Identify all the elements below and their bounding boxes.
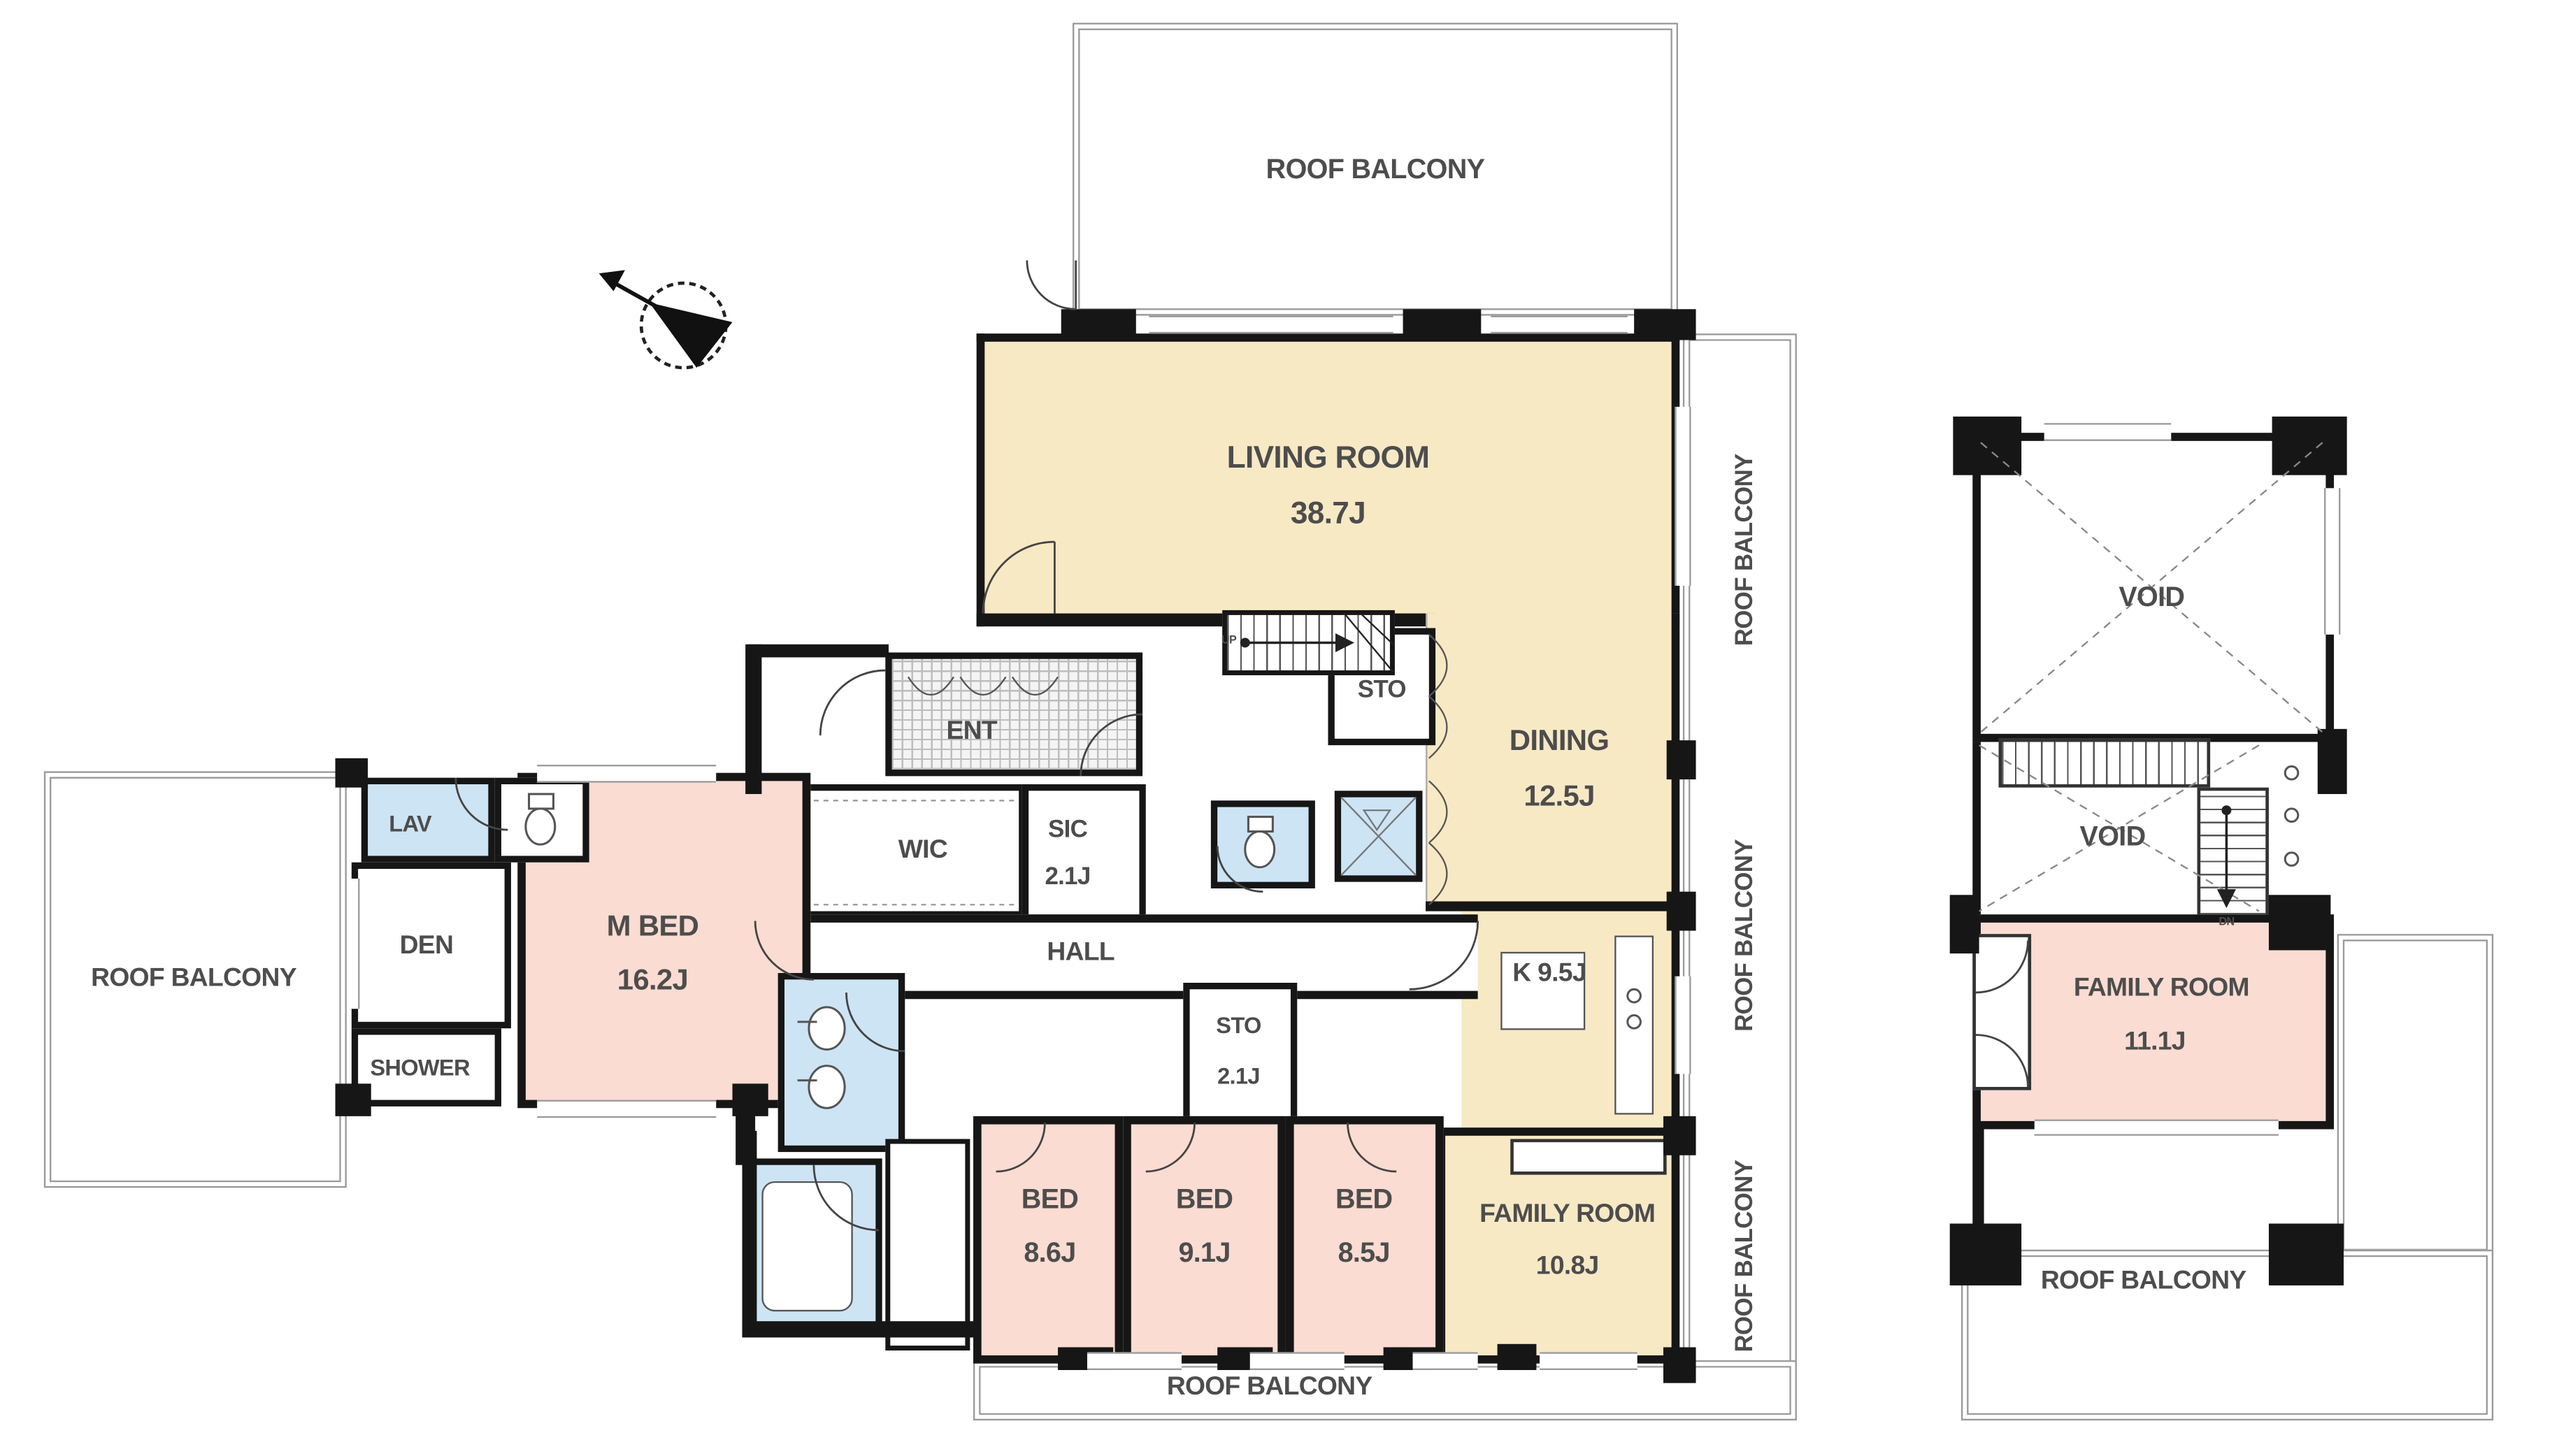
label-bed3-area: 8.5J [1338, 1239, 1390, 1267]
window [2044, 423, 2172, 441]
column [1498, 1344, 1537, 1370]
bed-closet [885, 1139, 970, 1350]
wall-kitchen-top [1426, 902, 1679, 911]
label-hall: HALL [1047, 940, 1114, 966]
annex-stairs-upper [1999, 739, 2211, 788]
label-sic-area: 2.1J [1045, 865, 1090, 889]
annex-family-doors [1972, 934, 2031, 1090]
label-bed2-area: 9.1J [1178, 1239, 1230, 1267]
label-roof-balcony-left: ROOF BALCONY [91, 967, 296, 993]
window [1087, 1352, 1182, 1370]
label-annex-family-area: 11.1J [2124, 1030, 2186, 1055]
column [336, 1083, 371, 1116]
column [2318, 729, 2347, 794]
stairs-main [1222, 610, 1395, 675]
room-hall [810, 914, 1477, 999]
label-roof-balcony-right-1: ROOF BALCONY [1733, 454, 1757, 646]
label-roof-balcony-right-3: ROOF BALCONY [1733, 1160, 1757, 1353]
label-wic: WIC [898, 838, 947, 864]
column [336, 758, 368, 788]
column [1667, 740, 1696, 779]
room-washroom [778, 973, 905, 1152]
column [1953, 417, 2021, 475]
label-sto-lower-name: STO [1216, 1014, 1261, 1037]
label-dining-name: DINING [1510, 726, 1609, 755]
column [2269, 1224, 2344, 1285]
window [1413, 1352, 1478, 1370]
label-roof-balcony-right-2: ROOF BALCONY [1733, 839, 1757, 1032]
label-roof-balcony-bottom: ROOF BALCONY [1167, 1375, 1372, 1401]
bathtub [761, 1181, 852, 1311]
label-sto-lower-area: 2.1J [1217, 1064, 1260, 1087]
column [1634, 309, 1696, 340]
label-family-name: FAMILY ROOM [1479, 1202, 1655, 1228]
window [1149, 316, 1393, 334]
room-wc-center [1211, 800, 1315, 888]
room-lav-wc [495, 778, 589, 863]
wall-ext-2 [742, 1321, 980, 1337]
label-void-lower: VOID [2079, 823, 2145, 851]
floor-plan: ROOF BALCONY ROOF BALCONY ROOF BALCONY R… [0, 0, 2552, 1456]
column [1403, 309, 1482, 340]
annex-wall-left-lower [1972, 1129, 1984, 1230]
label-mbed-name: M BED [607, 911, 699, 941]
window [537, 765, 716, 783]
label-annex-family-name: FAMILY ROOM [2074, 976, 2249, 1002]
column [1663, 1347, 1696, 1383]
room-ent [885, 652, 1142, 776]
label-annex-roof-balcony: ROOF BALCONY [2041, 1269, 2246, 1295]
label-sic-name: SIC [1048, 818, 1087, 842]
window [1491, 316, 1628, 334]
label-den: DEN [400, 934, 454, 960]
column [2269, 895, 2330, 950]
label-shower: SHOWER [370, 1056, 469, 1079]
wall-porch-2 [745, 644, 761, 794]
column [1950, 895, 1979, 953]
window [2035, 1120, 2279, 1136]
room-sic [1022, 784, 1146, 921]
label-void-upper: VOID [2119, 584, 2184, 612]
label-stairs-down: DN [2218, 917, 2234, 928]
label-lav: LAV [389, 812, 431, 835]
label-dining-area: 12.5J [1524, 781, 1594, 810]
window [1540, 1352, 1637, 1370]
window [1675, 976, 1691, 1074]
wall-porch-1 [749, 644, 889, 658]
room-powder [1335, 791, 1423, 881]
kitchen-counter [1614, 935, 1654, 1114]
label-mbed-area: 16.2J [617, 965, 688, 994]
label-stairs-up: UP [1221, 635, 1236, 647]
window [2324, 488, 2340, 635]
label-bed2-name: BED [1176, 1185, 1233, 1213]
room-sto-lower [1183, 983, 1297, 1123]
window [1675, 407, 1691, 586]
column [733, 1083, 768, 1116]
label-sto-upper: STO [1358, 678, 1406, 702]
annex-roof-balcony-side [2337, 934, 2493, 1256]
label-bed1-name: BED [1021, 1185, 1078, 1213]
label-ent: ENT [946, 719, 996, 745]
family-closet [1510, 1139, 1666, 1174]
compass-icon [599, 270, 733, 368]
window [1250, 1352, 1345, 1370]
label-bed1-area: 8.6J [1024, 1239, 1075, 1267]
label-living-name: LIVING ROOM [1227, 443, 1430, 474]
label-living-area: 38.7J [1291, 498, 1365, 529]
column [2272, 417, 2347, 475]
room-dining [1426, 614, 1679, 911]
window [345, 879, 359, 1009]
annex-stairs-lower [2198, 788, 2269, 918]
room-living [977, 333, 1680, 626]
label-family-area: 10.8J [1536, 1255, 1599, 1281]
window [537, 1100, 716, 1118]
column [1663, 1116, 1696, 1155]
label-kitchen: K 9.5J [1512, 962, 1586, 988]
label-roof-balcony-top: ROOF BALCONY [1266, 155, 1485, 183]
column [1667, 892, 1696, 931]
label-bed3-name: BED [1335, 1185, 1392, 1213]
column [1061, 309, 1136, 340]
column [1950, 1224, 2021, 1285]
